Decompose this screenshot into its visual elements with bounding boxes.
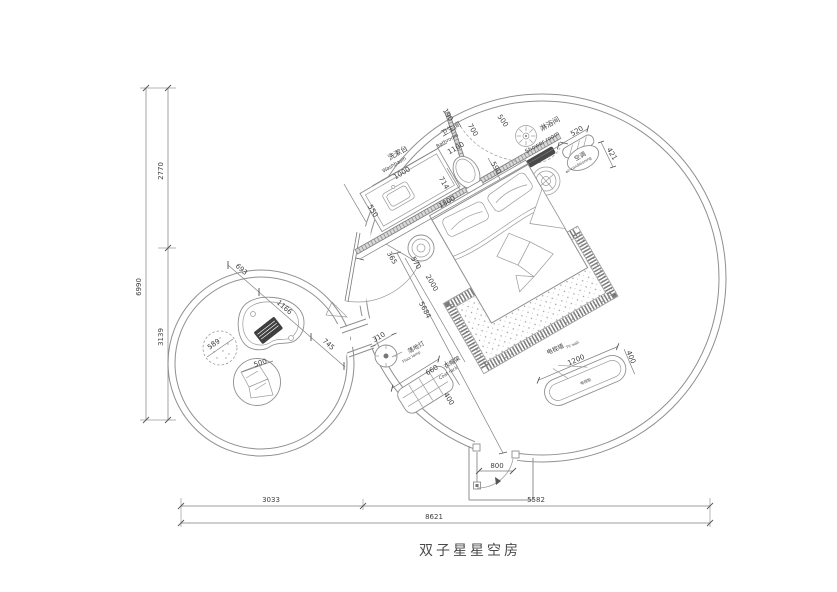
left-dimension-lines [140, 85, 176, 423]
dim-tv-len: 1200 [566, 353, 586, 368]
kidney-table [238, 297, 304, 350]
dim-bottom-total: 8621 [425, 513, 443, 521]
door-jamb [512, 451, 519, 458]
dim-bottom-right: 5582 [527, 496, 545, 504]
door-jamb [473, 444, 480, 451]
dim-door-width: 800 [490, 462, 503, 470]
tv-wall-label-zh: 电视墙 [545, 342, 565, 357]
dim-room-diag: 5684 [417, 300, 433, 320]
dim-ac-width: 520 [569, 124, 585, 138]
floor-plan-page: 电视柜 [0, 0, 837, 592]
tv-wall-label-en: TV wall [564, 340, 579, 351]
drawing-title: 双子星星空房 [419, 543, 521, 559]
floor-plan-drawing: 电视柜 [0, 0, 837, 592]
shower-label-zh: 淋浴间 [538, 115, 561, 134]
dim-partition-offset: 190 [441, 107, 455, 123]
swing-arrow [495, 477, 501, 485]
dim-bottom-left: 3033 [262, 496, 280, 504]
dim-shower-width: 500 [496, 113, 510, 129]
dim-partition-length: 700 [466, 122, 480, 138]
dim-left-top: 2770 [157, 162, 165, 180]
counter-depth-dim [344, 184, 366, 222]
dim-bed-length: 2000 [424, 273, 440, 292]
dim-lounge-a: 693 [234, 262, 249, 277]
dim-left-total: 6990 [135, 278, 143, 296]
bottom-dimension-lines [178, 498, 713, 527]
shower-head-icon [516, 126, 537, 147]
dim-left-bottom: 3139 [157, 328, 165, 346]
dim-coat-rack-depth: 400 [442, 391, 456, 407]
dim-bed-gap: 365 [385, 250, 399, 266]
dim-tv-depth: 400 [624, 349, 637, 364]
